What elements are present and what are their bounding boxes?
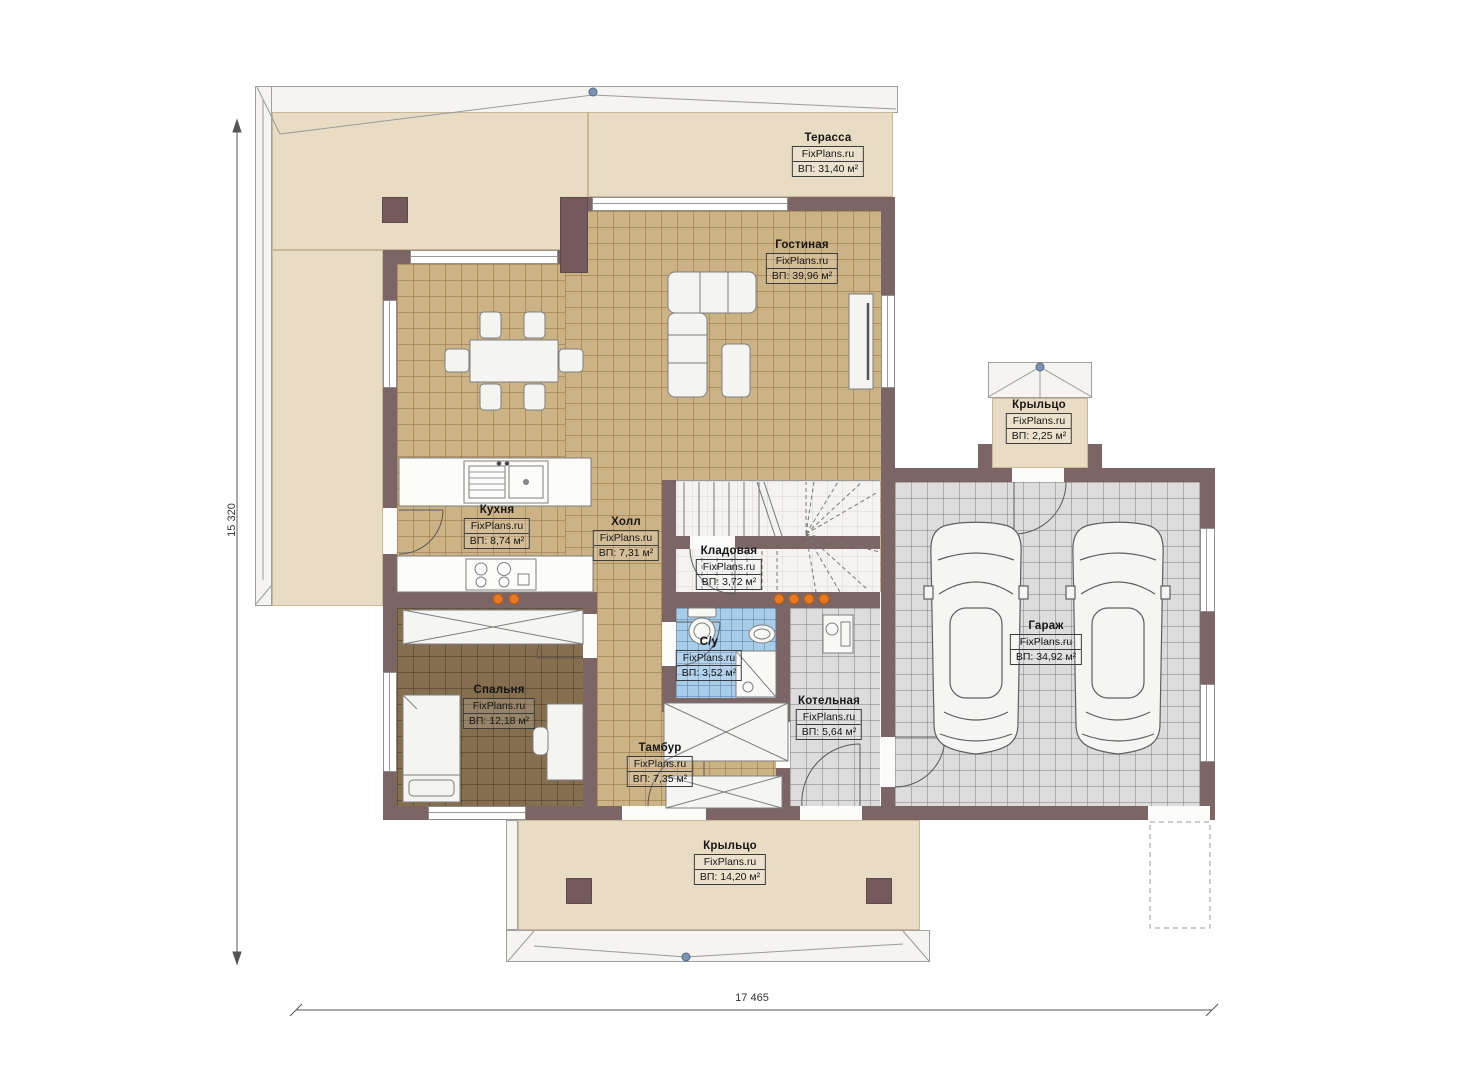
wall-garage-east: [1200, 468, 1215, 820]
floor-terrace: [272, 112, 588, 250]
porch-bottom-roof: [506, 930, 930, 962]
terrace-roof-band-left: [255, 86, 272, 606]
brand-watermark: FixPlans.ru: [464, 699, 534, 714]
room-label-boiler: Котельная FixPlans.ru ВП: 5,64 м²: [796, 695, 862, 740]
wall-bathroom-south: [662, 698, 790, 712]
brand-watermark: FixPlans.ru: [695, 855, 765, 870]
room-name: Гостиная: [766, 239, 838, 251]
room-label-porch-top: Крыльцо FixPlans.ru ВП: 2,25 м²: [1006, 399, 1072, 444]
door-opening-porch-garage: [1012, 468, 1064, 482]
room-name: Тамбур: [627, 742, 693, 754]
floor-plan-canvas: Терасса FixPlans.ru ВП: 31,40 м² Гостина…: [0, 0, 1474, 1080]
garage-apron: [1150, 822, 1210, 928]
room-label-porch-bottom: Крыльцо FixPlans.ru ВП: 14,20 м²: [694, 840, 766, 885]
porch-top-wall-stub: [1088, 444, 1102, 468]
brand-watermark: FixPlans.ru: [594, 531, 658, 546]
room-name: С/у: [676, 636, 742, 648]
room-area: ВП: 5,64 м²: [797, 725, 861, 739]
dimension-height: 15 320: [226, 488, 238, 552]
window: [410, 250, 558, 264]
wall-bathroom-west: [662, 480, 676, 712]
floor-terrace: [272, 250, 383, 606]
room-name: Терасса: [792, 132, 864, 144]
room-area: ВП: 7,31 м²: [594, 546, 658, 560]
porch-bottom-roof-left: [506, 820, 518, 930]
room-area: ВП: 3,52 м²: [677, 666, 741, 680]
window: [881, 295, 895, 388]
brand-watermark: FixPlans.ru: [1007, 414, 1071, 429]
brand-watermark: FixPlans.ru: [793, 147, 863, 162]
door-opening-bedroom: [583, 614, 597, 658]
window: [1200, 528, 1215, 612]
room-area: ВП: 12,18 м²: [464, 714, 534, 728]
room-name: Крыльцо: [1006, 399, 1072, 411]
room-label-vestibule: Тамбур FixPlans.ru ВП: 7,35 м²: [627, 742, 693, 787]
window: [383, 672, 397, 772]
door-opening-boiler-exterior: [800, 806, 862, 820]
wall-east: [881, 197, 895, 820]
door-opening-boiler-garage: [881, 737, 895, 787]
room-label-hall: Холл FixPlans.ru ВП: 7,31 м²: [593, 516, 659, 561]
room-label-terrace: Терасса FixPlans.ru ВП: 31,40 м²: [792, 132, 864, 177]
brand-watermark: FixPlans.ru: [697, 560, 761, 575]
door-opening-garage-gate: [1148, 806, 1210, 820]
room-name: Кухня: [464, 504, 530, 516]
door-opening-boiler: [776, 722, 790, 768]
room-area: ВП: 14,20 м²: [695, 870, 765, 884]
room-label-kitchen: Кухня FixPlans.ru ВП: 8,74 м²: [464, 504, 530, 549]
room-label-bedroom: Спальня FixPlans.ru ВП: 12,18 м²: [463, 684, 535, 729]
brand-watermark: FixPlans.ru: [1011, 635, 1081, 650]
room-area: ВП: 7,35 м²: [628, 772, 692, 786]
brand-watermark: FixPlans.ru: [465, 519, 529, 534]
room-area: ВП: 39,96 м²: [767, 269, 837, 283]
room-area: ВП: 2,25 м²: [1007, 429, 1071, 443]
terrace-column: [382, 197, 408, 223]
hall-passage: [597, 592, 662, 608]
brand-watermark: FixPlans.ru: [677, 651, 741, 666]
door-opening-terrace: [383, 508, 397, 554]
room-name: Холл: [593, 516, 659, 528]
porch-top-roof: [988, 362, 1092, 398]
porch-column: [866, 878, 892, 904]
room-label-living: Гостиная FixPlans.ru ВП: 39,96 м²: [766, 239, 838, 284]
room-area: ВП: 3,72 м²: [697, 575, 761, 589]
door-opening-entrance: [622, 806, 706, 820]
window: [383, 300, 397, 388]
brand-watermark: FixPlans.ru: [797, 710, 861, 725]
room-area: ВП: 31,40 м²: [793, 162, 863, 176]
wall-corner-column: [560, 197, 588, 273]
brand-watermark: FixPlans.ru: [628, 757, 692, 772]
room-name: Гараж: [1010, 620, 1082, 632]
room-area: ВП: 34,92 м²: [1011, 650, 1081, 664]
window: [1200, 684, 1215, 762]
room-label-bathroom: С/у FixPlans.ru ВП: 3,52 м²: [676, 636, 742, 681]
room-name: Спальня: [463, 684, 535, 696]
dimension-width: 17 465: [712, 992, 792, 1004]
room-label-garage: Гараж FixPlans.ru ВП: 34,92 м²: [1010, 620, 1082, 665]
room-name: Крыльцо: [694, 840, 766, 852]
porch-column: [566, 878, 592, 904]
room-name: Кладовая: [696, 545, 762, 557]
brand-watermark: FixPlans.ru: [767, 254, 837, 269]
porch-top-wall-stub: [978, 444, 992, 468]
wall-boiler-west: [776, 608, 790, 806]
terrace-roof-band-top: [255, 86, 898, 113]
room-area: ВП: 8,74 м²: [465, 534, 529, 548]
door-opening-bathroom: [662, 622, 676, 666]
terrace-slider-window: [592, 197, 788, 211]
window: [428, 806, 526, 820]
room-name: Котельная: [796, 695, 862, 707]
room-label-storage: Кладовая FixPlans.ru ВП: 3,72 м²: [696, 545, 762, 590]
